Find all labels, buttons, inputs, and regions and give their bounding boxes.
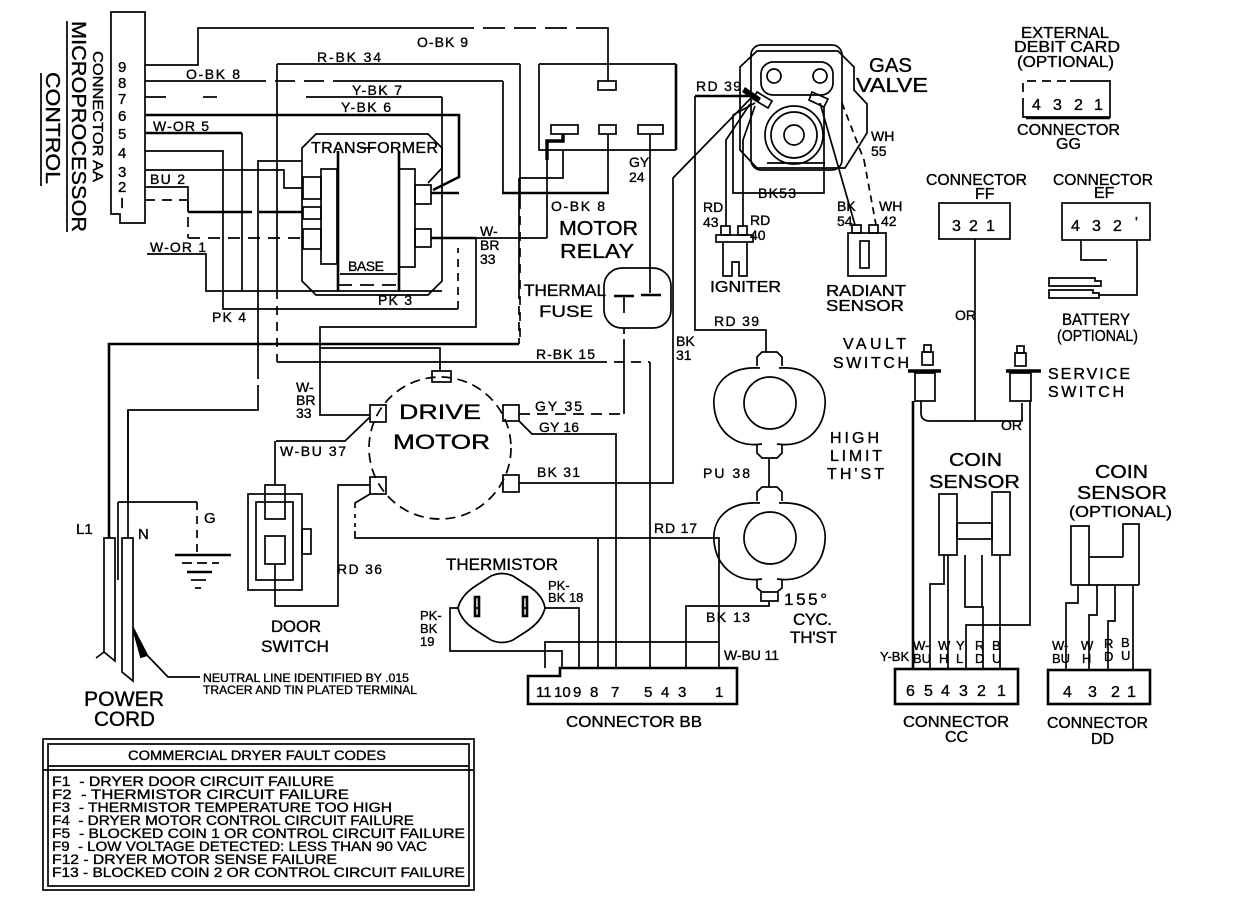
svg-text:BU: BU <box>913 651 931 666</box>
svg-text:4: 4 <box>118 145 126 162</box>
svg-text:MOTOR: MOTOR <box>393 431 490 454</box>
svg-text:33: 33 <box>296 405 312 421</box>
svg-text:2: 2 <box>118 179 126 196</box>
svg-text:CONNECTOR AA: CONNECTOR AA <box>89 51 105 182</box>
svg-text:(OPTIONAL): (OPTIONAL) <box>1069 504 1172 521</box>
svg-text:WH: WH <box>879 198 902 214</box>
svg-text:DD: DD <box>1091 731 1114 748</box>
svg-text:FF: FF <box>975 186 995 203</box>
svg-text:FUSE: FUSE <box>539 302 593 321</box>
svg-text:BU: BU <box>1052 651 1070 666</box>
svg-text:2: 2 <box>1111 684 1120 701</box>
svg-text:55: 55 <box>871 143 887 159</box>
svg-text:(OPTIONAL): (OPTIONAL) <box>1057 328 1138 345</box>
svg-text:5: 5 <box>644 684 652 701</box>
svg-text:1: 1 <box>715 684 723 701</box>
svg-text:3: 3 <box>952 218 961 235</box>
svg-text:L1: L1 <box>76 521 93 538</box>
svg-text:TH'ST: TH'ST <box>790 628 837 647</box>
svg-text:OR: OR <box>1001 417 1022 433</box>
svg-text:3: 3 <box>959 683 968 700</box>
svg-text:THERMISTOR: THERMISTOR <box>446 555 558 574</box>
svg-text:R-BK 15: R-BK 15 <box>536 346 595 362</box>
svg-text:GY: GY <box>629 154 650 170</box>
svg-text:BK53: BK53 <box>758 185 796 201</box>
svg-text:W-BU 37: W-BU 37 <box>280 443 346 459</box>
svg-text:9: 9 <box>118 59 126 76</box>
svg-text:3: 3 <box>678 684 686 701</box>
svg-text:BK 18: BK 18 <box>548 590 583 605</box>
svg-text:Y-BK: Y-BK <box>880 649 909 664</box>
svg-text:40: 40 <box>750 227 766 243</box>
svg-text:IGNITER: IGNITER <box>710 279 781 296</box>
svg-text:OR: OR <box>955 307 976 323</box>
svg-text:33: 33 <box>480 251 496 267</box>
svg-text:1: 1 <box>1127 684 1136 701</box>
svg-text:U: U <box>1121 648 1130 663</box>
svg-text:D: D <box>1104 649 1113 664</box>
svg-text:N: N <box>138 526 149 543</box>
svg-text:RD: RD <box>750 212 770 228</box>
svg-text:42: 42 <box>881 213 897 229</box>
svg-text:EF: EF <box>1094 185 1115 202</box>
svg-text:31: 31 <box>676 347 692 363</box>
svg-text:RD 17: RD 17 <box>654 520 697 536</box>
svg-text:BASE: BASE <box>348 258 384 274</box>
svg-text:7: 7 <box>118 91 126 108</box>
svg-text:D: D <box>975 651 984 666</box>
svg-text:MOTOR: MOTOR <box>559 218 638 240</box>
svg-text:24: 24 <box>629 169 645 185</box>
svg-text:6: 6 <box>118 108 126 125</box>
svg-text:DRIVE: DRIVE <box>399 401 481 424</box>
svg-text:CONTROL: CONTROL <box>41 72 63 184</box>
svg-text:PK 4: PK 4 <box>212 309 246 325</box>
svg-text:7: 7 <box>611 684 619 701</box>
svg-text:NEUTRAL LINE IDENTIFIED BY .01: NEUTRAL LINE IDENTIFIED BY .015 <box>203 673 409 685</box>
svg-text:HIGH: HIGH <box>830 430 879 447</box>
svg-text:4: 4 <box>1032 97 1041 114</box>
svg-text:VAULT: VAULT <box>843 336 906 353</box>
svg-text:GG: GG <box>1056 136 1081 153</box>
svg-text:GY 16: GY 16 <box>539 419 579 435</box>
svg-text:SENSOR: SENSOR <box>1077 483 1167 503</box>
svg-text:VALVE: VALVE <box>856 75 928 97</box>
svg-text:3: 3 <box>1092 218 1101 235</box>
svg-text:155°: 155° <box>784 590 827 609</box>
svg-text:1: 1 <box>997 683 1006 700</box>
svg-text:W-OR 1: W-OR 1 <box>150 239 206 255</box>
svg-text:19: 19 <box>420 634 434 649</box>
svg-text:U: U <box>992 651 1001 666</box>
svg-text:4: 4 <box>941 683 950 700</box>
svg-text:O-BK 8: O-BK 8 <box>551 198 605 214</box>
svg-text:BK: BK <box>837 198 856 214</box>
svg-text:RD 36: RD 36 <box>337 561 382 577</box>
svg-text:2: 2 <box>969 218 978 235</box>
svg-text:L: L <box>956 651 963 666</box>
svg-text:SWITCH: SWITCH <box>261 637 329 656</box>
svg-text:MICROPROCESSOR: MICROPROCESSOR <box>67 21 89 232</box>
svg-text:8: 8 <box>118 75 126 92</box>
svg-text:TRANSFORMER: TRANSFORMER <box>311 140 438 157</box>
svg-text:4: 4 <box>1071 218 1080 235</box>
svg-text:4: 4 <box>661 684 669 701</box>
svg-text:WH: WH <box>871 128 894 144</box>
svg-text:H: H <box>1082 651 1091 666</box>
svg-text:COIN: COIN <box>949 450 1002 470</box>
svg-text:BK 13: BK 13 <box>706 609 750 625</box>
svg-text:CC: CC <box>945 729 968 746</box>
svg-text:1: 1 <box>986 218 995 235</box>
svg-text:LIMIT: LIMIT <box>830 448 882 465</box>
svg-text:W-BU 11: W-BU 11 <box>724 647 779 663</box>
svg-text:1: 1 <box>1094 97 1103 114</box>
svg-text:W-OR 5: W-OR 5 <box>153 118 209 134</box>
svg-text:O-BK 9: O-BK 9 <box>417 34 468 50</box>
svg-text:I: I <box>120 195 124 212</box>
svg-text:': ' <box>1135 214 1138 231</box>
svg-text:BATTERY: BATTERY <box>1062 310 1130 329</box>
svg-text:RD 39: RD 39 <box>714 313 759 329</box>
svg-text:5: 5 <box>924 683 933 700</box>
svg-text:BK 31: BK 31 <box>537 464 580 480</box>
svg-text:TRACER AND TIN PLATED TERMINAL: TRACER AND TIN PLATED TERMINAL <box>203 685 418 697</box>
svg-text:BU 2: BU 2 <box>150 171 185 187</box>
svg-text:CORD: CORD <box>94 708 155 731</box>
svg-text:PU 38: PU 38 <box>703 465 750 481</box>
svg-text:8: 8 <box>590 684 598 701</box>
svg-text:11: 11 <box>536 684 552 701</box>
svg-text:3: 3 <box>1088 684 1097 701</box>
svg-text:43: 43 <box>703 214 719 230</box>
svg-text:CONNECTOR: CONNECTOR <box>1047 715 1148 732</box>
svg-text:54: 54 <box>837 213 853 229</box>
svg-text:CONNECTOR BB: CONNECTOR BB <box>566 714 702 731</box>
svg-text:H: H <box>939 651 948 666</box>
svg-text:2: 2 <box>1074 97 1083 114</box>
svg-text:COIN: COIN <box>1095 462 1148 482</box>
svg-text:GY 35: GY 35 <box>535 398 582 414</box>
svg-text:10: 10 <box>554 684 571 701</box>
svg-text:G: G <box>204 510 216 527</box>
svg-text:GAS: GAS <box>869 55 912 77</box>
svg-text:6: 6 <box>906 683 915 700</box>
svg-text:CYC.: CYC. <box>793 610 832 629</box>
svg-text:O-BK 8: O-BK 8 <box>186 66 240 82</box>
svg-text:4: 4 <box>1063 684 1072 701</box>
svg-text:THERMAL: THERMAL <box>524 281 606 300</box>
svg-text:RELAY: RELAY <box>560 241 634 263</box>
svg-text:2: 2 <box>1113 218 1122 235</box>
svg-text:TH'ST: TH'ST <box>827 466 884 483</box>
svg-text:5: 5 <box>118 126 126 143</box>
svg-text:SENSOR: SENSOR <box>929 472 1020 492</box>
svg-text:COMMERCIAL DRYER FAULT CODES: COMMERCIAL DRYER FAULT CODES <box>128 748 386 763</box>
svg-text:DOOR: DOOR <box>271 617 321 636</box>
svg-text:SENSOR: SENSOR <box>826 298 904 315</box>
svg-text:2: 2 <box>977 683 986 700</box>
svg-text:(OPTIONAL): (OPTIONAL) <box>1017 54 1114 71</box>
svg-text:9: 9 <box>573 684 581 701</box>
svg-text:RD: RD <box>703 199 723 215</box>
svg-text:RD 39: RD 39 <box>696 78 741 94</box>
svg-text:F13 - BLOCKED COIN 2 OR CONTRO: F13 - BLOCKED COIN 2 OR CONTROL CIRCUIT … <box>52 865 465 880</box>
svg-text:3: 3 <box>1053 97 1062 114</box>
